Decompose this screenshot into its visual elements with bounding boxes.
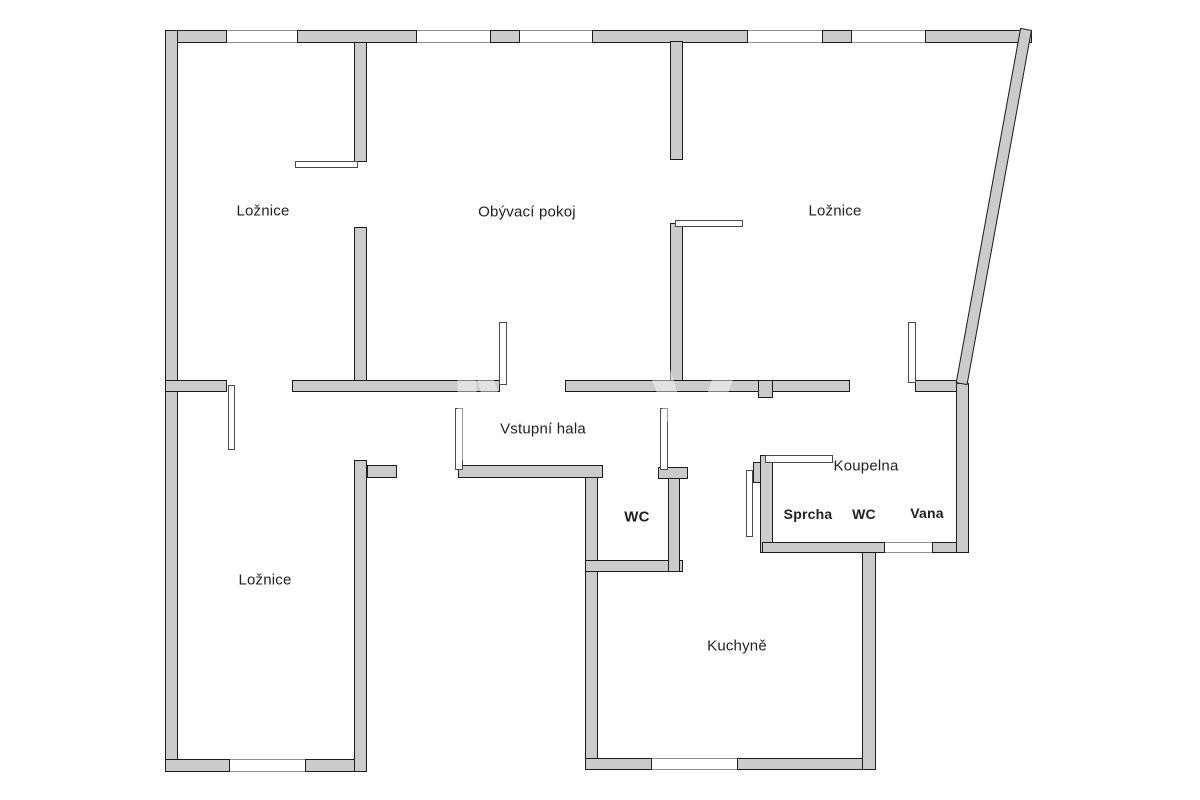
window-top-5 [852, 30, 925, 43]
door-leaf-entrance [455, 408, 463, 470]
room-label-koupelna: Koupelna [834, 458, 899, 475]
wall-kitchen-bottom-1 [585, 758, 652, 770]
fixture-label-vana: Vana [910, 505, 944, 521]
door-leaf-wc [660, 408, 668, 470]
room-label-kuchyne: Kuchyně [707, 638, 767, 655]
wall-living-tr-up [670, 41, 683, 160]
fixture-label-sprcha: Sprcha [784, 506, 833, 522]
wall-exterior-diagonal [956, 28, 1032, 385]
door-leaf-bedroom-tl-living [295, 161, 358, 168]
wall-exterior-left [165, 30, 178, 772]
room-label-loznice-top-right: Ložnice [808, 203, 861, 220]
wall-hall-bottom [458, 465, 603, 478]
window-top-4 [748, 30, 822, 43]
wall-living-tr-low [670, 223, 683, 392]
window-bedroom-bl [230, 759, 305, 772]
wall-hall-stub [367, 465, 397, 478]
wall-bedroom-bl-right [354, 460, 367, 772]
room-label-loznice-top-left: Ložnice [236, 203, 289, 220]
window-top-3 [520, 30, 592, 43]
wall-kitchen-bottom-2 [737, 758, 876, 770]
wall-bottom-left-1 [165, 759, 230, 772]
window-kitchen [652, 758, 737, 770]
floorplan-canvas: MV LožniceObývací pokojLožniceLožniceVst… [0, 0, 1200, 800]
door-leaf-living-room [499, 322, 507, 385]
room-label-obyvaci-pokoj: Obývací pokoj [478, 204, 576, 221]
window-top-1 [227, 30, 297, 43]
door-leaf-bedroom-tr [908, 322, 916, 383]
wall-wc-right [668, 472, 680, 572]
room-label-loznice-bottom-left: Ložnice [238, 572, 291, 589]
door-leaf-bedrooms-left [228, 385, 235, 450]
wall-bathroom-left [760, 455, 773, 553]
wall-top-segment-3 [490, 30, 520, 43]
wall-top-segment-6 [925, 30, 1032, 43]
wall-bedroom-tl-right-up [354, 42, 367, 162]
door-leaf-corridor [746, 470, 753, 537]
wall-bedroom-tl-right-low [354, 227, 367, 392]
fixture-label-wc: WC [852, 506, 876, 522]
wall-top-segment-5 [822, 30, 852, 43]
window-bathroom [885, 542, 932, 553]
wall-bathroom-bottom-1 [762, 542, 885, 553]
wall-exterior-right [956, 383, 969, 553]
wall-divider-1 [165, 380, 227, 392]
wall-kitchen-left [585, 477, 598, 770]
wall-divider-3 [565, 380, 850, 392]
window-top-2 [417, 30, 490, 43]
room-label-vstupni-hala: Vstupní hala [500, 421, 586, 438]
room-label-wc: WC [624, 509, 649, 526]
door-leaf-bathroom [765, 455, 833, 463]
wall-divider-2 [292, 380, 500, 392]
door-leaf-living-bedroom-tr [675, 220, 743, 227]
wall-bathroom-left-stub [753, 462, 761, 483]
wall-kitchen-right [862, 542, 876, 770]
wall-divider-stub [758, 380, 773, 398]
